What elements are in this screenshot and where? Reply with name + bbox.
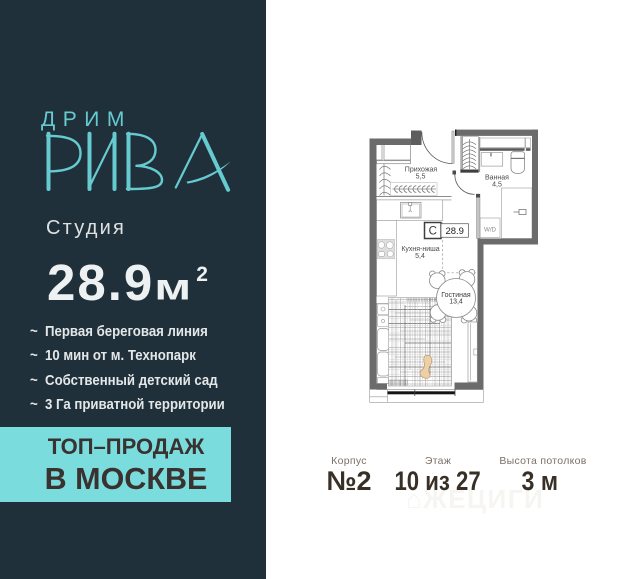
svg-text:5,4: 5,4 <box>415 253 425 260</box>
svg-text:Кухня-ниша: Кухня-ниша <box>401 246 439 253</box>
svg-text:Прихожая: Прихожая <box>405 167 438 174</box>
svg-text:28.9: 28.9 <box>445 226 464 237</box>
svg-text:Ванная: Ванная <box>485 175 509 182</box>
svg-text:4,5: 4,5 <box>492 182 502 189</box>
svg-text:5,5: 5,5 <box>416 174 426 181</box>
svg-text:W/D: W/D <box>484 227 497 234</box>
svg-text:С: С <box>429 226 437 238</box>
svg-text:13,4: 13,4 <box>449 299 463 306</box>
